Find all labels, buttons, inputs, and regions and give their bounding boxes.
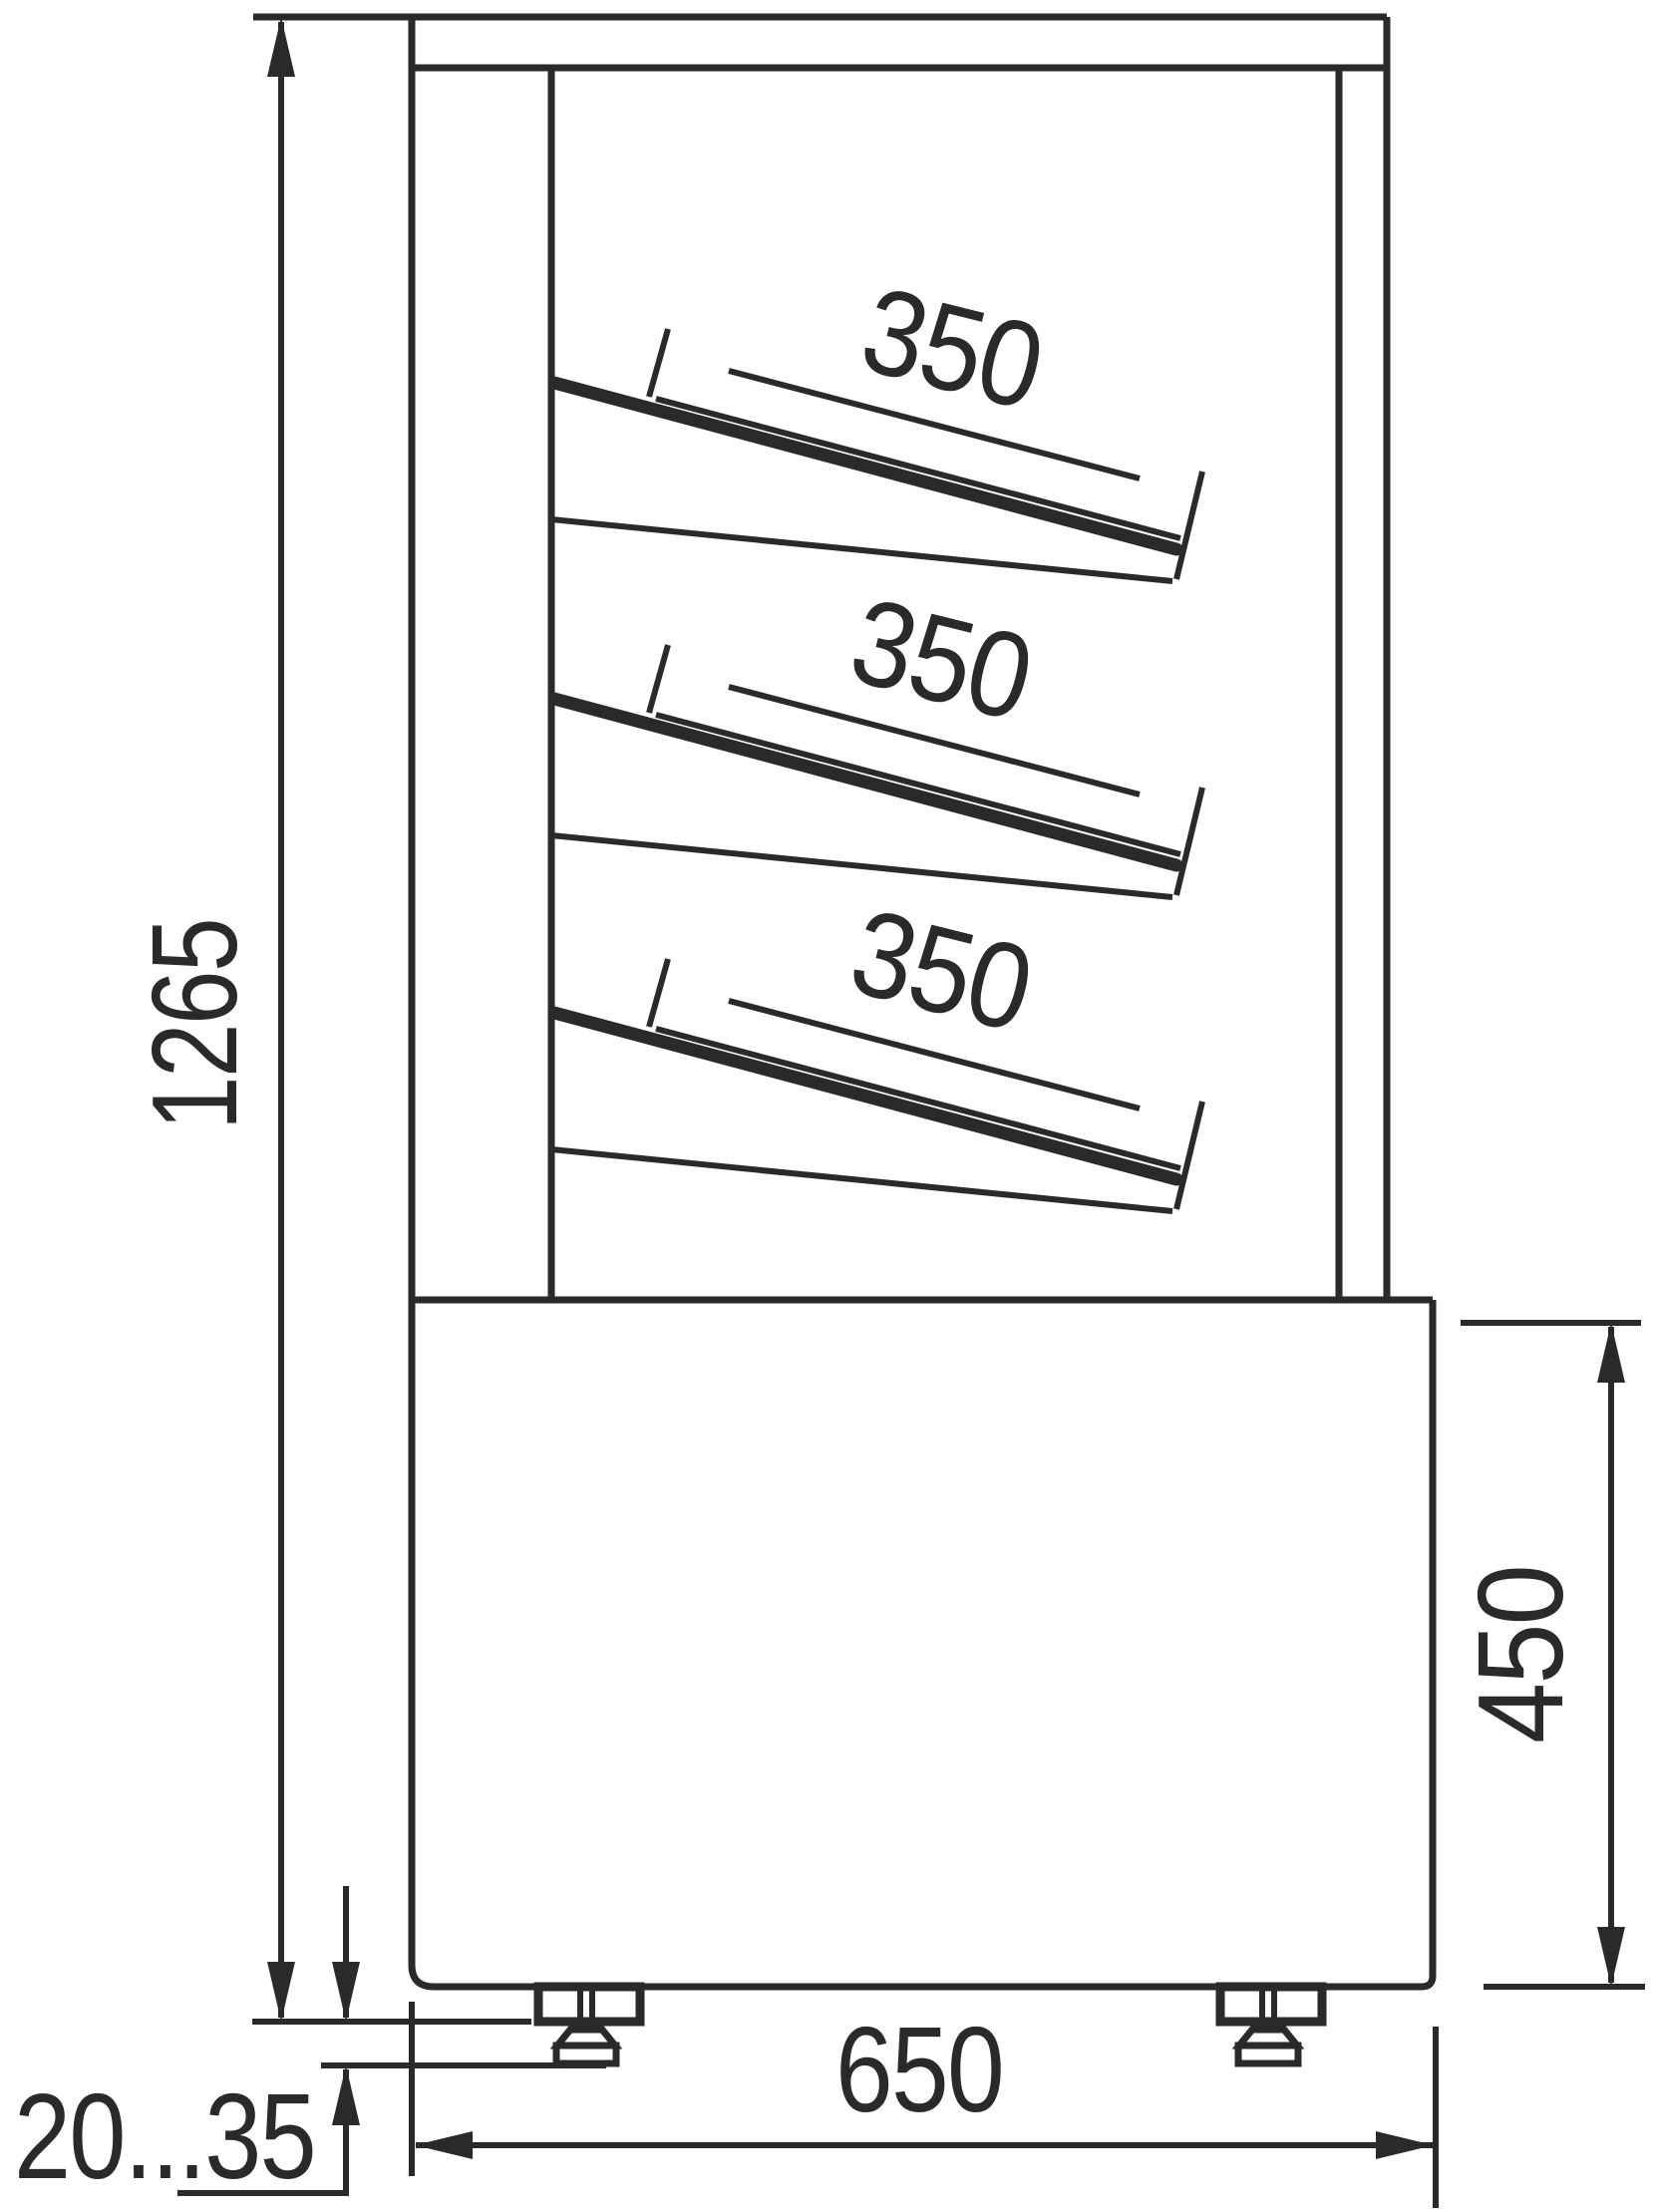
shelf-3-left-tick <box>649 959 668 1027</box>
dim-overall-height: 1265 <box>127 17 531 2022</box>
shelf-3-depth-label: 350 <box>838 883 1044 1058</box>
shelf-1-right-tick <box>1176 472 1202 579</box>
shelf-2-left-tick <box>649 645 668 713</box>
arrow-up-icon <box>267 17 295 77</box>
base-depth-label: 650 <box>835 2002 1003 2137</box>
shelf-3-right-tick <box>1176 1102 1202 1209</box>
overall-height-label: 1265 <box>127 919 262 1130</box>
shelf-2-depth-label: 350 <box>838 572 1044 747</box>
foot-right <box>1220 1987 1322 2063</box>
dim-shelf-2-depth: 350 <box>838 572 1044 747</box>
foot-right-pad <box>1238 2046 1298 2063</box>
base-height-label: 450 <box>1453 1566 1588 1743</box>
arrow-down-icon <box>267 1962 295 2022</box>
shelf-2-right-tick <box>1176 788 1202 895</box>
arrow-right-icon <box>1376 2131 1434 2159</box>
arrow-down-icon <box>1597 1927 1625 1987</box>
display-case-dimension-drawing: 1265 350 350 350 450 650 20...35 <box>0 0 1654 2212</box>
arrow-up-icon <box>1597 1323 1625 1383</box>
dim-shelf-3-depth: 350 <box>838 883 1044 1058</box>
shelf-1-left-tick <box>649 329 668 397</box>
dim-base-height: 450 <box>1453 1323 1645 1987</box>
feet-range-label: 20...35 <box>14 2068 315 2204</box>
arrow-up-icon <box>332 2065 360 2125</box>
arrow-down-icon <box>332 1962 360 2022</box>
technical-drawing-page: 1265 350 350 350 450 650 20...35 <box>0 0 1654 2212</box>
dim-feet-range: 20...35 <box>14 1886 606 2204</box>
arrow-left-icon <box>415 2131 473 2159</box>
foot-left <box>538 1987 640 2063</box>
foot-left-pad <box>556 2046 616 2063</box>
